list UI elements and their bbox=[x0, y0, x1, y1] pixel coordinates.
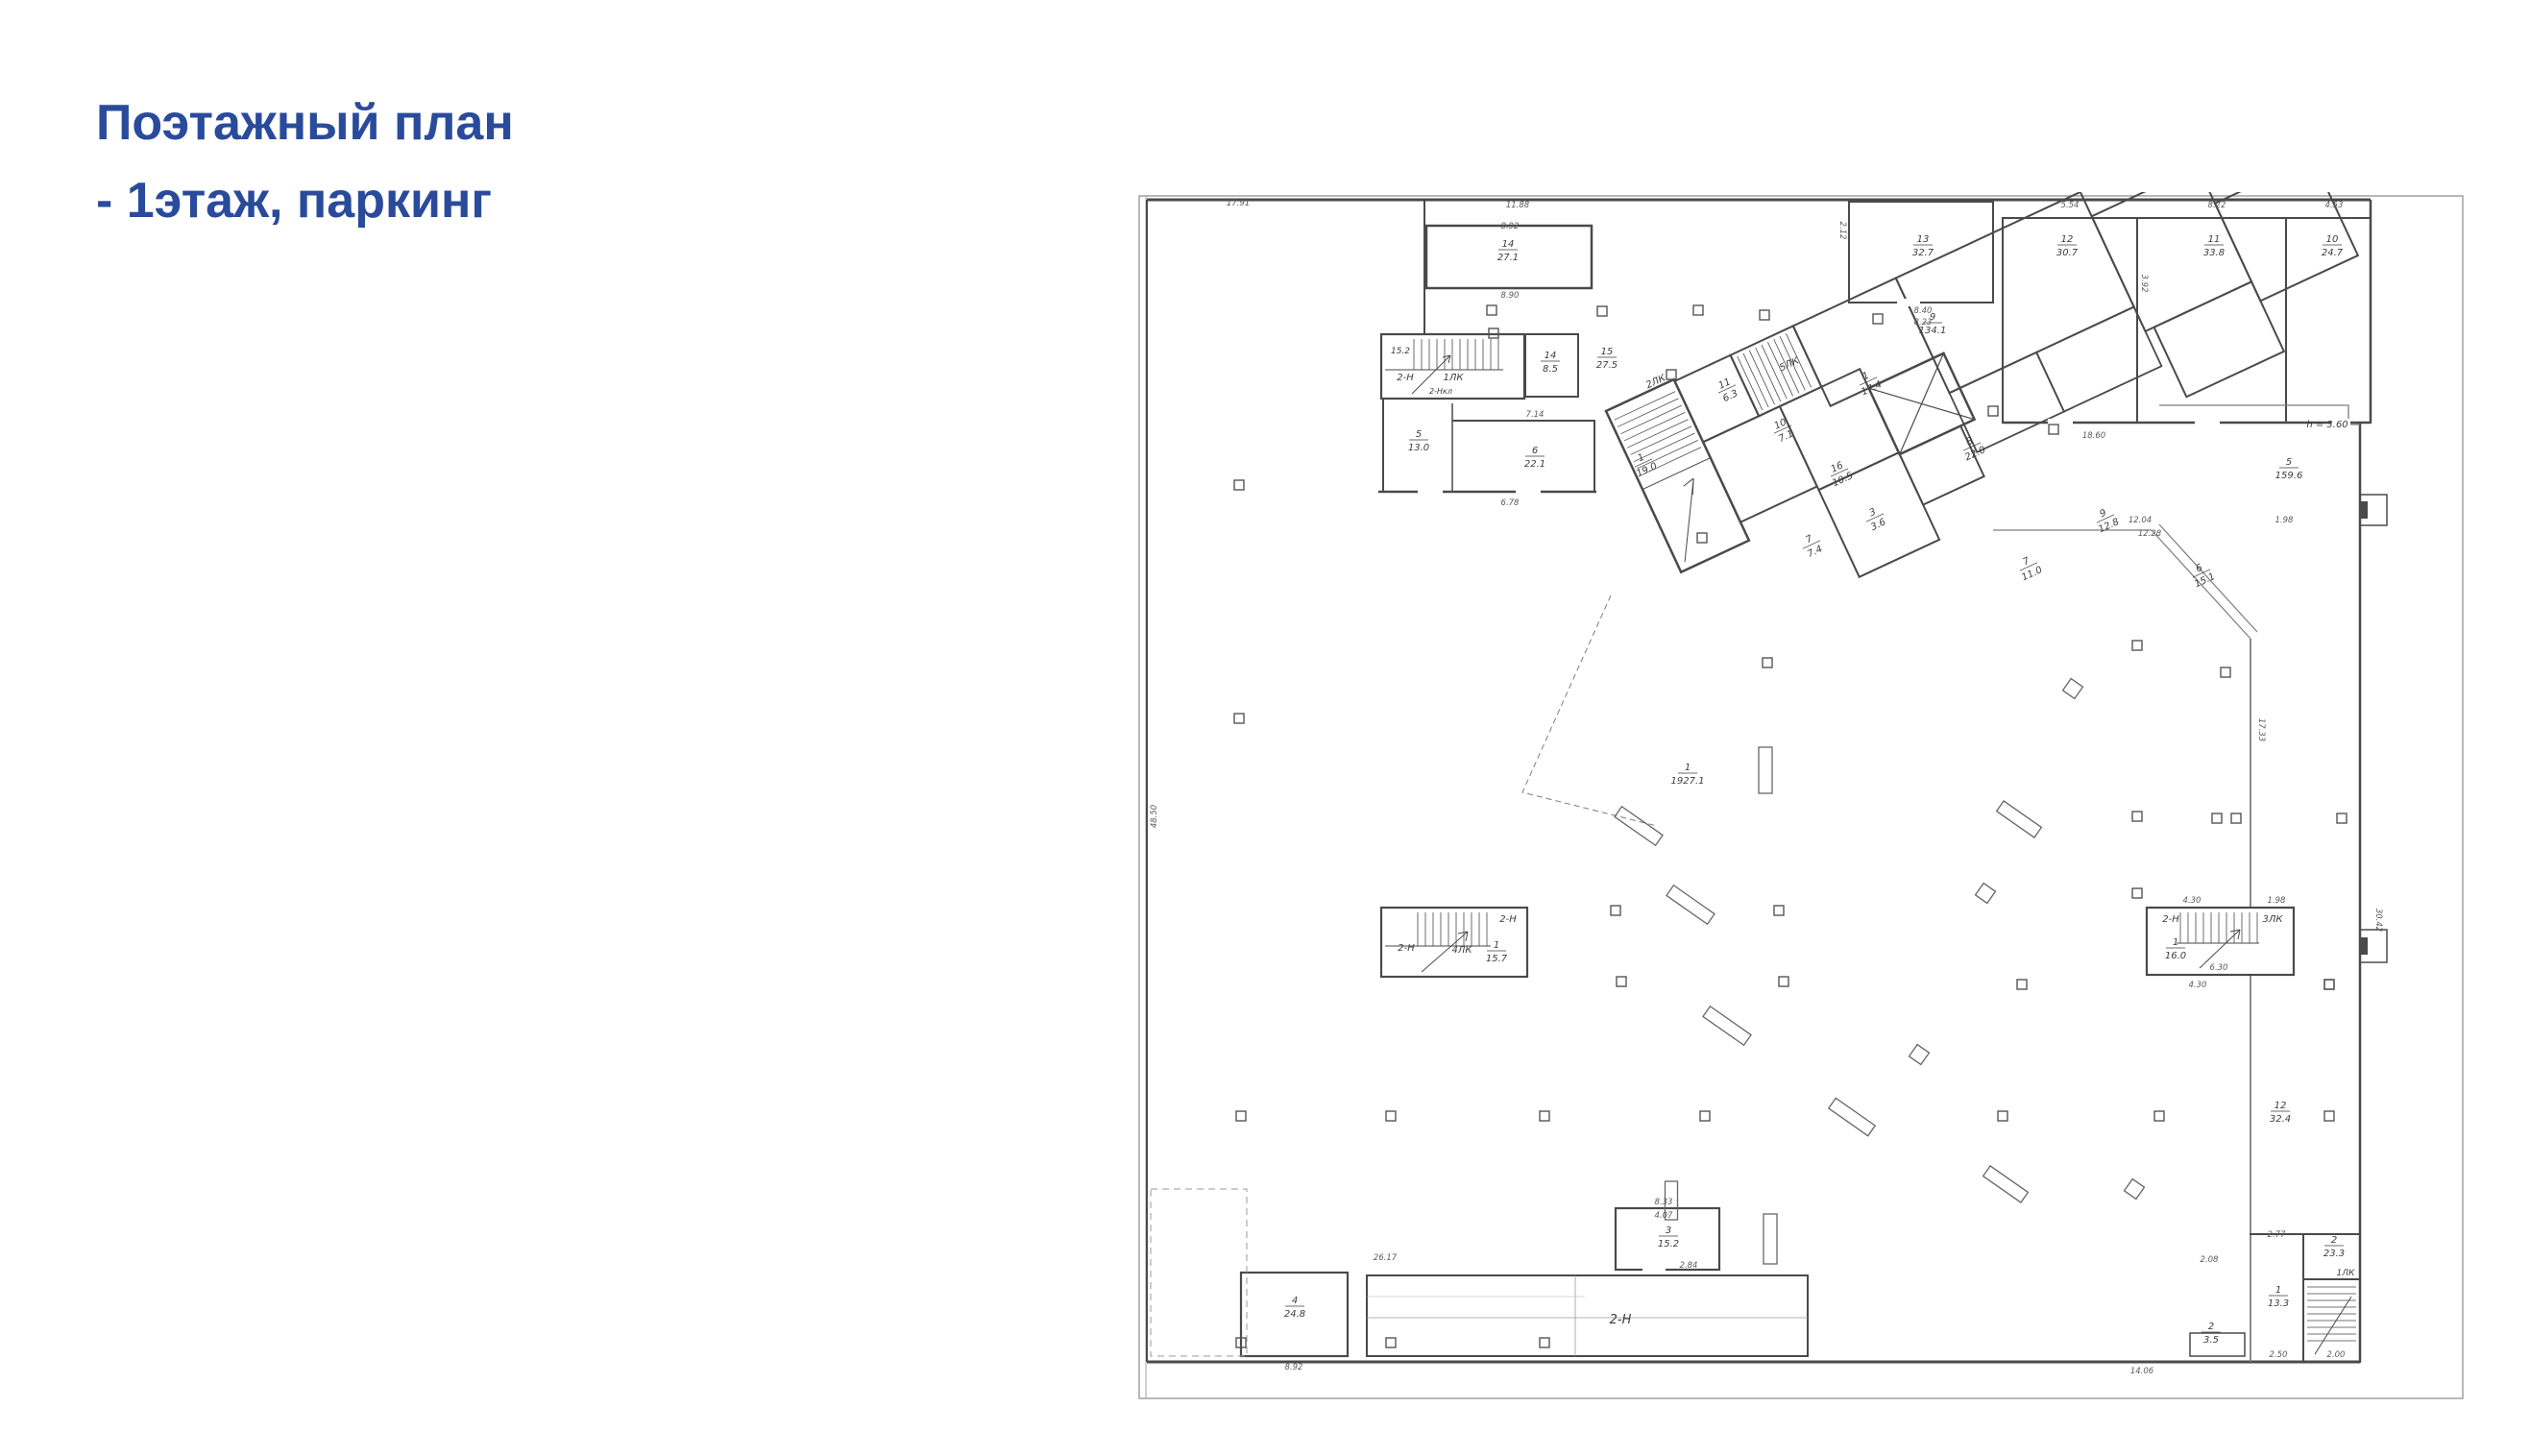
dimension-label: 8.90 bbox=[1501, 291, 1520, 301]
parking-mark bbox=[1759, 747, 1772, 793]
plan-text-label: 15.2 bbox=[1391, 347, 1410, 356]
dimension-label: 1.98 bbox=[2268, 896, 2287, 906]
room-number: 1 bbox=[1494, 940, 1499, 951]
room-area: 13.0 bbox=[1408, 443, 1429, 453]
dimension-label: 18.60 bbox=[2082, 431, 2105, 441]
room-area: 27.5 bbox=[1596, 360, 1618, 371]
room-label: 113.3 bbox=[2268, 1285, 2289, 1309]
room-label: 1133.8 bbox=[2203, 234, 2225, 258]
plan-text-label: 3ЛК bbox=[2263, 914, 2284, 925]
dimension-label: 6.30 bbox=[2210, 963, 2228, 973]
bottom-band bbox=[1151, 1189, 1808, 1356]
plan-text-label: 5ЛК bbox=[1778, 355, 1801, 374]
column-marker bbox=[2154, 1111, 2164, 1121]
room-label: 223.3 bbox=[2323, 1235, 2345, 1259]
room-area: 16.0 bbox=[2165, 951, 2186, 961]
parking-mark bbox=[1829, 1098, 1875, 1135]
room-label: 11927.1 bbox=[1671, 763, 1705, 787]
room-label: 1024.7 bbox=[2322, 234, 2344, 258]
dimension-label: 4.30 bbox=[2183, 896, 2202, 906]
room-area: 1927.1 bbox=[1671, 776, 1705, 787]
column-marker bbox=[1697, 533, 1707, 543]
plan-text-label: 4ЛК bbox=[1452, 945, 1473, 956]
parking-mark bbox=[2125, 1179, 2145, 1200]
room-labels-layer: 1427.11332.71230.71133.81024.79134.11527… bbox=[1284, 234, 2345, 1346]
parking-marks-layer bbox=[1615, 679, 2144, 1264]
room-number: 11 bbox=[1717, 376, 1733, 391]
room-number: 4 bbox=[1292, 1296, 1298, 1306]
dimension-label: 4.07 bbox=[1655, 1211, 1674, 1221]
room-number: 12 bbox=[2061, 234, 2074, 245]
door-gaps bbox=[1897, 299, 2350, 427]
room-number: 15 bbox=[1601, 347, 1614, 357]
column-marker bbox=[2324, 980, 2334, 989]
column-marker bbox=[1386, 1111, 1396, 1121]
room-10-outline bbox=[1703, 406, 1817, 522]
dimension-label: 17.33 bbox=[2256, 718, 2266, 741]
page-title: Поэтажный план - 1этаж, паркинг bbox=[96, 85, 634, 239]
plan-text-label: 1ЛК bbox=[1444, 373, 1465, 383]
parking-mark bbox=[1703, 1007, 1751, 1045]
room-area: 6.3 bbox=[1721, 388, 1739, 404]
column-marker bbox=[1779, 977, 1788, 986]
room-number: 3 bbox=[1666, 1225, 1671, 1236]
room-label: 315.2 bbox=[1658, 1225, 1679, 1250]
column-marker bbox=[1666, 370, 1676, 379]
room-area: 30.7 bbox=[2056, 248, 2079, 258]
sheet-frame bbox=[1139, 196, 2463, 1398]
parking-mark bbox=[1976, 884, 1996, 904]
plan-text-label: 2-Н bbox=[1499, 914, 1517, 925]
dimension-label: 17.91 bbox=[1227, 199, 1250, 208]
dimension-label: 2.08 bbox=[2201, 1255, 2220, 1265]
dimension-label: 8.33 bbox=[1655, 1198, 1673, 1207]
room-label: 711.0 bbox=[2014, 552, 2044, 583]
room-number: 14 bbox=[1545, 351, 1557, 361]
plan-text-label: h = 3.60 bbox=[2306, 420, 2348, 430]
column-marker bbox=[2324, 980, 2334, 989]
dimension-label: 2.00 bbox=[2327, 1350, 2346, 1360]
page-title-line2: - 1этаж, паркинг bbox=[96, 162, 634, 240]
plan-text-label: 2-Нкл bbox=[1429, 387, 1452, 396]
room-number: 6 bbox=[1532, 446, 1538, 456]
room-label: 622.1 bbox=[1524, 446, 1545, 470]
column-marker bbox=[1760, 310, 1769, 320]
column-marker bbox=[2231, 813, 2241, 823]
column-marker bbox=[1617, 977, 1626, 986]
room-label: 1527.5 bbox=[1596, 347, 1618, 371]
columns-layer bbox=[1234, 305, 2347, 1347]
room-label: 107.1 bbox=[1769, 416, 1797, 446]
column-marker bbox=[1234, 714, 1244, 723]
room-number: 11 bbox=[2208, 234, 2221, 245]
column-marker bbox=[1540, 1338, 1549, 1347]
room-area: 33.8 bbox=[2203, 248, 2225, 258]
room-area: 15.7 bbox=[1486, 954, 1508, 964]
dimension-label: 2.50 bbox=[2270, 1350, 2288, 1360]
right-wall-vestibules bbox=[2360, 495, 2387, 962]
column-marker bbox=[1487, 305, 1496, 315]
column-marker bbox=[1236, 1111, 1246, 1121]
plan-text-label: 2-Н bbox=[1610, 1313, 1632, 1327]
column-marker bbox=[1234, 480, 1244, 490]
room-area: 19.0 bbox=[1635, 461, 1659, 479]
column-marker bbox=[2324, 1111, 2334, 1121]
dimension-label: 7.14 bbox=[1526, 410, 1545, 420]
dimension-label: 1.98 bbox=[2275, 516, 2295, 525]
dimension-label: 3.92 bbox=[2139, 275, 2149, 293]
dimension-label: 2.12 bbox=[1837, 222, 1847, 240]
plan-text-label: 2-Н bbox=[1398, 943, 1415, 954]
floor-plan: 1427.11332.71230.71133.81024.79134.11527… bbox=[1133, 192, 2469, 1404]
dimension-label: 5.54 bbox=[2061, 201, 2080, 210]
column-marker bbox=[2132, 888, 2142, 898]
column-marker bbox=[1988, 406, 1998, 416]
room-label: 77.4 bbox=[1798, 531, 1826, 561]
room-number: 1 bbox=[2173, 937, 2178, 948]
room-label: 115.7 bbox=[1486, 940, 1508, 964]
dimension-label: 8.92 bbox=[1285, 1363, 1303, 1372]
room-area: 3.5 bbox=[2203, 1335, 2219, 1346]
room-label: 1230.7 bbox=[2056, 234, 2079, 258]
plan-text-label: 2-Н bbox=[2162, 914, 2179, 925]
room-area: 23.3 bbox=[2323, 1249, 2345, 1259]
column-marker bbox=[1386, 1338, 1396, 1347]
dimension-label: 4.30 bbox=[2189, 981, 2207, 990]
room-area: 32.7 bbox=[1912, 248, 1934, 258]
room-label: 116.0 bbox=[2165, 937, 2186, 961]
plan-text-label: 2-Н bbox=[1397, 373, 1414, 383]
core-group bbox=[1606, 192, 2392, 644]
room-label: 513.0 bbox=[1408, 429, 1429, 453]
dimension-label: 14.06 bbox=[2130, 1367, 2154, 1376]
column-marker bbox=[1774, 906, 1784, 915]
column-marker bbox=[1873, 314, 1883, 324]
column-marker bbox=[2132, 812, 2142, 821]
column-marker bbox=[2212, 813, 2222, 823]
room-number: 14 bbox=[1502, 239, 1515, 250]
room-area: 7.1 bbox=[1777, 428, 1795, 445]
room-label: 1232.4 bbox=[2270, 1101, 2291, 1125]
parking-mark bbox=[1764, 1214, 1777, 1264]
room-label: 33.6 bbox=[1861, 504, 1889, 534]
column-marker bbox=[1693, 305, 1703, 315]
room-number: 16 bbox=[1830, 460, 1845, 474]
elevator-x-icon bbox=[1869, 353, 1975, 454]
dimension-label: 12.04 bbox=[2129, 516, 2152, 525]
room-label: 1332.7 bbox=[1912, 234, 1934, 258]
dimension-label: 48.50 bbox=[1150, 805, 1159, 828]
room-area: 7.4 bbox=[1806, 544, 1824, 560]
parking-mark bbox=[2063, 679, 2083, 699]
room-label: 822.0 bbox=[1958, 432, 1987, 463]
room-label: 148.5 bbox=[1541, 351, 1560, 375]
column-marker bbox=[2017, 980, 2027, 989]
dimension-label: 6.78 bbox=[1501, 498, 1520, 508]
floor-plan-drawing: 1427.11332.71230.71133.81024.79134.11527… bbox=[1133, 192, 2469, 1404]
slide-page: { "title": { "line1": "Поэтажный план", … bbox=[0, 0, 2530, 1456]
room-number: 2 bbox=[2208, 1322, 2214, 1332]
ramp-outline bbox=[1367, 1275, 1808, 1356]
room-3-outline bbox=[1900, 425, 1984, 504]
room-label: 1427.1 bbox=[1497, 239, 1519, 263]
parking-mark bbox=[1666, 886, 1715, 924]
room-area: 22.1 bbox=[1524, 459, 1545, 470]
room-area: 12.8 bbox=[2097, 517, 2121, 535]
room-number: 13 bbox=[1917, 234, 1930, 245]
room-number: 1 bbox=[1685, 763, 1691, 773]
column-marker bbox=[2337, 813, 2347, 823]
dim-labels-layer: 17.9111.888.928.902.125.548.224.533.928.… bbox=[1150, 199, 2383, 1376]
room-number: 10 bbox=[2326, 234, 2339, 245]
plan-text-label: 1ЛК bbox=[2337, 1269, 2355, 1278]
dimension-label: 2.84 bbox=[1680, 1261, 1698, 1271]
room-area: 15.2 bbox=[1658, 1239, 1679, 1250]
column-marker bbox=[1763, 658, 1772, 667]
column-marker bbox=[1540, 1111, 1549, 1121]
room-number: 5 bbox=[1416, 429, 1422, 440]
room-area: 11.0 bbox=[2020, 565, 2044, 583]
room-label: 424.8 bbox=[1284, 1296, 1305, 1320]
parking-mark bbox=[1997, 801, 2042, 837]
parking-mark bbox=[1910, 1045, 1930, 1065]
room-label: 116.3 bbox=[1714, 376, 1741, 405]
page-title-line1: Поэтажный план bbox=[96, 85, 634, 162]
room-number: 1 bbox=[2275, 1285, 2281, 1296]
dimension-label: 2.77 bbox=[2268, 1230, 2287, 1240]
dimension-label: 11.88 bbox=[1506, 201, 1530, 210]
dimension-label: 4.53 bbox=[2325, 201, 2344, 210]
column-marker bbox=[2132, 641, 2142, 650]
room-area: 8.5 bbox=[1543, 364, 1558, 375]
room-number: 2 bbox=[2331, 1235, 2337, 1246]
dashed-zone bbox=[1151, 1189, 1247, 1356]
room-area: 32.4 bbox=[2270, 1114, 2291, 1125]
room-number: 12 bbox=[2275, 1101, 2287, 1111]
room-area: 13.3 bbox=[2268, 1298, 2289, 1309]
room-area: 24.8 bbox=[1284, 1309, 1305, 1320]
column-marker bbox=[2221, 667, 2230, 677]
parking-mark bbox=[1615, 807, 1663, 845]
room-label: 5159.6 bbox=[2275, 457, 2303, 481]
room-number: 5 bbox=[2286, 457, 2292, 468]
room-area: 159.6 bbox=[2275, 471, 2303, 481]
room-11-outline bbox=[1675, 355, 1760, 442]
stair-2lk-outline bbox=[1606, 379, 1749, 572]
dimension-label: 8.22 bbox=[2208, 201, 2226, 210]
column-marker bbox=[1611, 906, 1620, 915]
dimension-label: 8.23 bbox=[1914, 318, 1933, 328]
room-area: 15.1 bbox=[2193, 571, 2217, 590]
dimension-label: 8.40 bbox=[1914, 306, 1933, 316]
dimension-label: 30.42 bbox=[2373, 909, 2383, 932]
column-marker bbox=[1700, 1111, 1710, 1121]
room-9-outline bbox=[2092, 192, 2251, 331]
room-area: 3.6 bbox=[1869, 517, 1887, 533]
parking-mark bbox=[1983, 1166, 2029, 1202]
dimension-label: 26.17 bbox=[1374, 1253, 1398, 1263]
room-area: 22.0 bbox=[1963, 445, 1987, 463]
accessory-walls bbox=[1522, 405, 2360, 1362]
dimension-label: 8.92 bbox=[1501, 222, 1520, 231]
dimension-label: 12.28 bbox=[2138, 529, 2162, 539]
column-marker bbox=[1597, 306, 1607, 316]
room-area: 24.7 bbox=[2322, 248, 2344, 258]
column-marker bbox=[1998, 1111, 2007, 1121]
room-area: 27.1 bbox=[1497, 253, 1519, 263]
